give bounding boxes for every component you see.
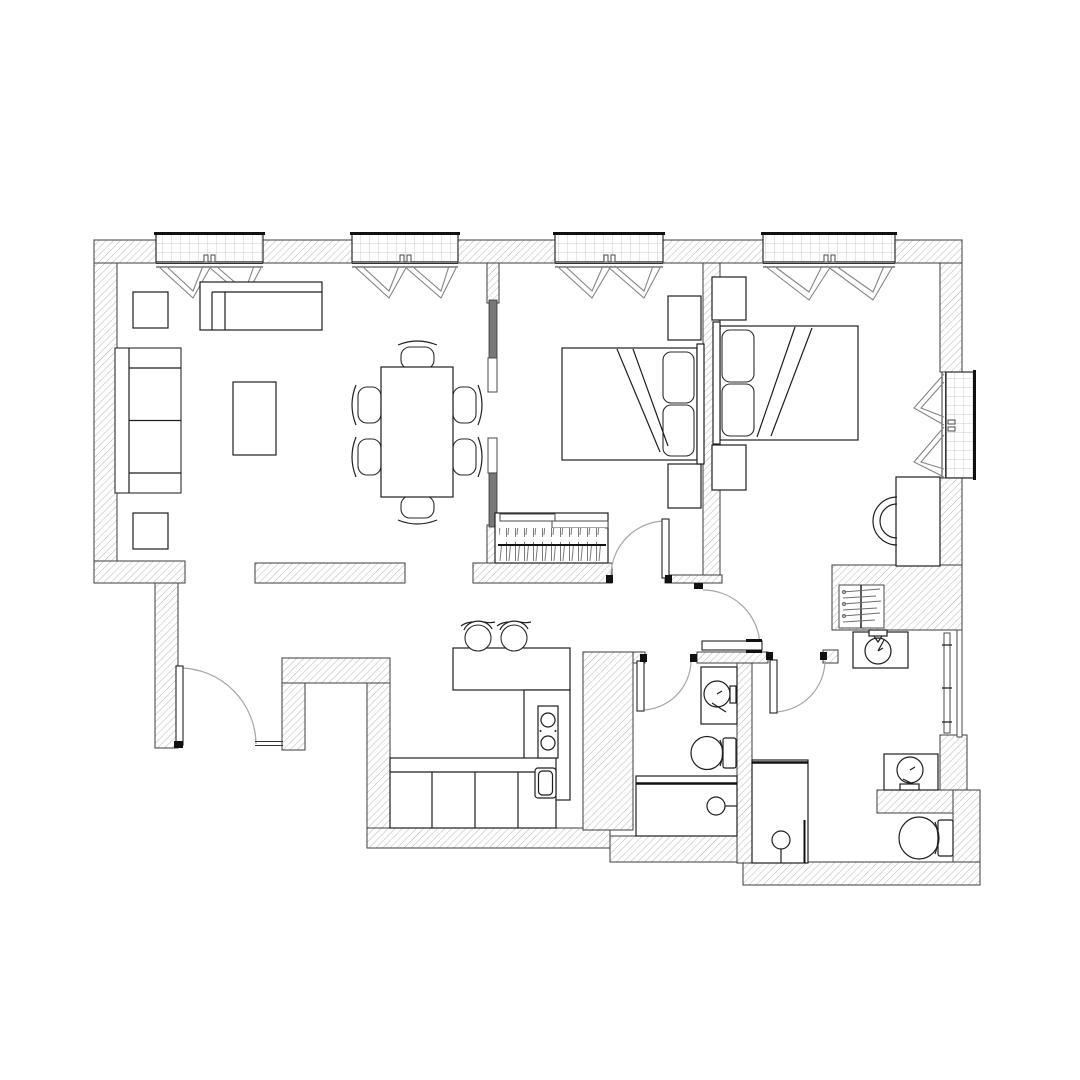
room-kitchen (390, 621, 570, 828)
wall-hall-bar (282, 658, 390, 683)
wall-left (94, 240, 117, 583)
wall-kitchen-bottom (367, 828, 610, 848)
bathroom2-door (766, 652, 827, 713)
tv-sideboard (200, 282, 322, 330)
wall-door-foot (665, 575, 722, 583)
wall-right-mid (940, 478, 962, 565)
nightstand-2b (712, 445, 746, 490)
wall-top-d (663, 240, 763, 263)
wall-right-top (940, 263, 962, 372)
nightstand-1a (668, 296, 701, 340)
room-living-dining (115, 282, 482, 549)
dining-chair-right-1 (453, 385, 482, 425)
wall-bath-divider (737, 663, 752, 863)
dining-chair-left-1 (352, 385, 381, 425)
room-bathroom-1 (636, 667, 737, 836)
wall-right-mid2 (940, 735, 967, 790)
toilet-1 (691, 737, 736, 770)
side-table-2 (133, 513, 168, 549)
pillow (722, 384, 754, 436)
pillow (722, 330, 754, 382)
wall-bath2-bottom (743, 862, 980, 885)
sliding-panel-top (489, 300, 497, 358)
pillow (663, 352, 694, 403)
wall-under-tub (610, 836, 748, 862)
washbasin-2a (853, 630, 908, 668)
wall-shaft (583, 652, 633, 830)
wall-bed1-bottom (473, 563, 612, 583)
bathtub (636, 776, 737, 836)
window-2 (350, 234, 460, 299)
dining-chair-left-2 (352, 437, 381, 477)
bar-stool-2 (497, 621, 531, 651)
window-3 (553, 234, 665, 299)
side-table-1 (133, 292, 168, 328)
wall-vestibule-left (155, 583, 178, 748)
sofa (115, 348, 181, 493)
desk-chair (873, 497, 897, 545)
wall-top-e (895, 240, 962, 263)
pillow (663, 405, 694, 456)
dining-chair-top (398, 341, 437, 369)
headboard-1 (697, 344, 704, 464)
window-4 (761, 234, 897, 301)
corridor-door (694, 583, 762, 653)
room-bedroom-1 (495, 296, 704, 563)
wall-top-a (94, 240, 156, 263)
toilet-2 (899, 817, 953, 859)
shower (752, 760, 808, 863)
desk (896, 477, 940, 566)
dining-chair-right-2 (453, 437, 482, 477)
partition-rail-top (488, 358, 497, 392)
wall-bath2-strip (877, 790, 953, 813)
coffee-table (233, 382, 276, 455)
bed-2 (713, 322, 858, 444)
room-bedroom-2 (712, 277, 940, 566)
floor-plan-sheet (0, 0, 1080, 1080)
dining-set (352, 341, 482, 524)
room-bathroom-2 (752, 630, 953, 863)
dining-table (381, 367, 453, 497)
nightstand-1b (668, 464, 701, 508)
sliding-partition (488, 300, 497, 527)
nightstand-2a (712, 277, 746, 320)
wall-kitchen-left (367, 683, 390, 828)
cooktop (538, 706, 558, 758)
wall-partition-living-top (487, 263, 499, 303)
counter-peninsula (453, 648, 570, 690)
bed-1 (562, 344, 704, 464)
wall-vestibule-right (282, 683, 305, 750)
washbasin-2b (884, 754, 938, 790)
entrance-door (174, 666, 283, 748)
dining-chair-bottom (398, 496, 437, 524)
partition-rail-bot (488, 438, 497, 473)
wall-living-bottomleft (94, 561, 185, 583)
window-5 (914, 370, 975, 480)
base-cabinets (390, 758, 556, 828)
wall-bath1-top (697, 652, 768, 663)
bar-stool-1 (461, 621, 495, 651)
bedroom1-door (606, 519, 672, 583)
hall-closet (839, 585, 884, 628)
washbasin-1 (701, 667, 737, 724)
wall-top-b (263, 240, 352, 263)
wardrobe-sliding (495, 513, 608, 563)
headboard-2 (713, 322, 720, 444)
wall-top-c (458, 240, 555, 263)
floor-plan-canvas (0, 0, 1080, 1080)
bathroom1-door (637, 654, 697, 711)
wall-niche-panel (957, 630, 962, 737)
towel-radiator (942, 633, 952, 733)
kitchen-sink (535, 768, 556, 798)
wall-island (255, 563, 405, 583)
